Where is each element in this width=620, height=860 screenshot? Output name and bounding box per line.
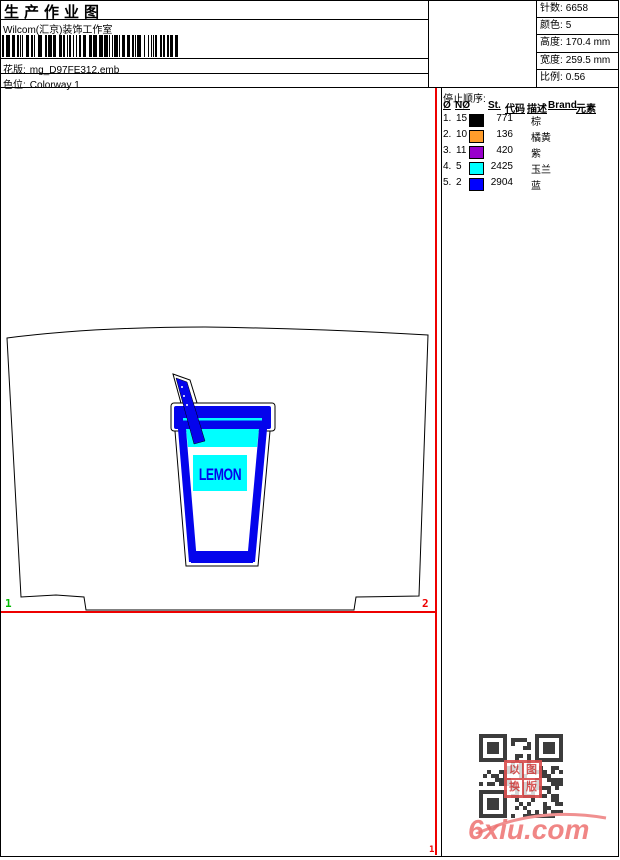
colorway-label: 色位:	[3, 80, 26, 91]
row-description: 橘黄	[531, 129, 551, 144]
marker-2: 2	[422, 598, 429, 609]
row-stitches: 136	[484, 129, 513, 140]
stat-height: 高度:170.4 mm	[537, 35, 618, 52]
row-description: 棕	[531, 113, 541, 128]
colorway-value: Colorway 1	[30, 80, 80, 91]
table-row: 1. 15 771 棕	[0, 113, 618, 127]
barcode-divider	[0, 58, 429, 59]
row-needle: 10	[456, 129, 467, 140]
stat-width: 宽度:259.5 mm	[537, 53, 618, 70]
studio-name: Wilcom(汇京)装饰工作室	[3, 21, 112, 36]
row-needle: 11	[456, 145, 466, 156]
row-seq: 1.	[443, 113, 451, 124]
row-stitches: 2425	[484, 161, 513, 172]
table-row: 3. 11 420 紫	[0, 145, 618, 159]
header-right-border	[428, 0, 429, 87]
table-row: 2. 10 136 橘黄	[0, 129, 618, 143]
stat-colors: 颜色:5	[537, 18, 618, 35]
col-header-brand: Brand	[548, 100, 577, 111]
stamp-char: 以	[506, 762, 523, 779]
color-swatch	[469, 162, 484, 175]
row-needle: 15	[456, 113, 467, 124]
col-header-needle: NØ	[455, 100, 470, 111]
pattern-value: mg_D97FE312.emb	[30, 65, 120, 76]
stamp-char: 图	[523, 762, 540, 779]
color-swatch	[469, 178, 484, 191]
row-stitches: 771	[484, 113, 513, 124]
colorway-row: 色位:Colorway 1	[3, 76, 80, 91]
row-description: 玉兰	[531, 161, 551, 176]
row-needle: 5	[456, 161, 462, 172]
color-swatch	[469, 130, 484, 143]
row-seq: 4.	[443, 161, 451, 172]
guide-vertical	[435, 88, 437, 855]
panel-left-border	[441, 88, 442, 856]
pattern-label: 花版:	[3, 65, 26, 76]
stat-scale: 比例:0.56	[537, 70, 618, 86]
row-needle: 2	[456, 177, 462, 188]
row-description: 紫	[531, 145, 541, 160]
watermark-site: 6xiu.com	[468, 814, 618, 846]
header-bottom-divider	[0, 87, 619, 88]
stamp-char: 换	[506, 779, 523, 796]
marker-bottom: 1	[429, 845, 434, 856]
row-seq: 5.	[443, 177, 451, 188]
color-swatch	[469, 114, 484, 127]
row-seq: 3.	[443, 145, 451, 156]
title-divider	[0, 19, 429, 20]
pattern-divider	[0, 73, 429, 74]
red-stamp: 以 图 换 版	[504, 760, 542, 798]
row-stitches: 420	[484, 145, 513, 156]
stamp-char: 版	[523, 779, 540, 796]
design-info-box: 针数:6658 颜色:5 高度:170.4 mm 宽度:259.5 mm 比例:…	[536, 1, 618, 87]
row-seq: 2.	[443, 129, 451, 140]
color-swatch	[469, 146, 484, 159]
col-header-index: Ø	[443, 100, 451, 111]
stat-stitches: 针数:6658	[537, 1, 618, 18]
barcode	[2, 35, 182, 57]
table-row: 4. 5 2425 玉兰	[0, 161, 618, 175]
row-stitches: 2904	[484, 177, 513, 188]
marker-1: 1	[5, 598, 12, 609]
baseline-guide-horizontal	[1, 611, 437, 613]
row-description: 蓝	[531, 177, 541, 192]
col-header-stitches: St.	[488, 100, 501, 111]
table-row: 5. 2 2904 蓝	[0, 177, 618, 191]
